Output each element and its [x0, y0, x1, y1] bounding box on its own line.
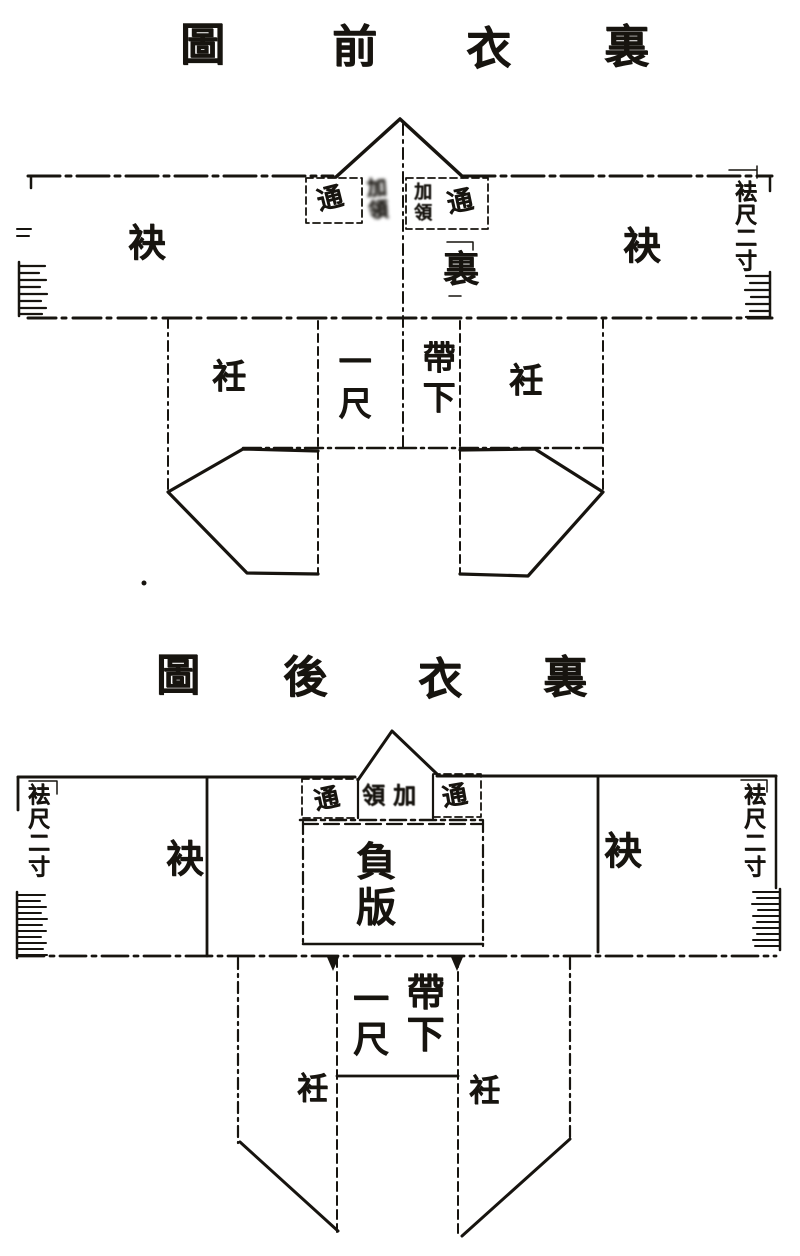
back-title-char-4: 裏 [543, 641, 587, 705]
front-cuff-hatch-left [19, 262, 47, 316]
diagram-strokes [0, 0, 800, 1256]
front-sleeve-left-label: 袂 [128, 224, 166, 262]
back-flap-diagonal-right [462, 1139, 570, 1236]
front-skirt-left [168, 449, 318, 574]
front-diagram-lines [17, 119, 772, 586]
front-left-edge-marks [17, 229, 31, 236]
back-collar-center-label: 領加 [362, 784, 424, 807]
front-collar-peak [336, 119, 463, 177]
back-title-char-1: 圖 [156, 639, 200, 703]
front-sleeve-right-label: 袂 [623, 227, 661, 265]
front-title-char-1: 圖 [180, 8, 225, 73]
front-skirt-right [460, 449, 603, 576]
front-title-char-4: 裏 [604, 10, 649, 75]
back-one-chi-label: 一尺 [350, 980, 386, 1060]
front-collar-stack-left-label: 加領 [364, 176, 387, 221]
front-one-chi-label: 一尺 [336, 344, 369, 428]
back-cuff-note-left: 袪尺二寸 [26, 783, 48, 879]
front-collar-tong-right-label: 通 [445, 187, 476, 218]
back-lapel-right-label: 衽 [469, 1076, 500, 1107]
back-sleeve-left-label: 袂 [166, 840, 204, 878]
back-sleeve-right-label: 袂 [604, 832, 642, 870]
back-title-char-3: 衣 [418, 643, 462, 707]
back-cuff-note-right: 袪尺二寸 [742, 783, 764, 879]
stray-ink-dot [142, 581, 147, 586]
front-lapel-right-label: 衽 [509, 364, 543, 398]
back-collar-tong-right-label: 通 [440, 781, 469, 810]
front-title-char-3: 衣 [466, 12, 511, 77]
front-cuff-note-right: 袪尺二寸 [733, 180, 755, 272]
front-below-belt-label: 帶下 [420, 340, 453, 420]
woodblock-page: 圖 前 衣 裏 通 加領 加領 通 袂 袂 裏 袪尺二寸 衽 衽 一尺 帶下 圖… [0, 0, 800, 1256]
front-title-char-2: 前 [332, 10, 377, 75]
front-collar-stack-right-label: 加領 [412, 182, 430, 224]
back-collar-tong-left-label: 通 [312, 784, 342, 814]
back-below-belt-label: 帶下 [403, 972, 441, 1056]
back-cuff-hatch-right [752, 889, 780, 950]
front-lining-label: 裏 [443, 251, 479, 287]
back-collar-peak [358, 731, 437, 780]
back-title-char-2: 後 [283, 641, 327, 705]
back-cuff-hatch-left [17, 892, 47, 958]
front-cuff-hatch-right [745, 272, 770, 318]
back-flap-diagonal-left [240, 1142, 338, 1231]
back-panel-label: 負版 [352, 840, 392, 932]
front-corner-ticks [31, 176, 770, 191]
back-lapel-left-label: 衽 [297, 1074, 328, 1105]
front-lapel-left-label: 衽 [212, 360, 246, 394]
